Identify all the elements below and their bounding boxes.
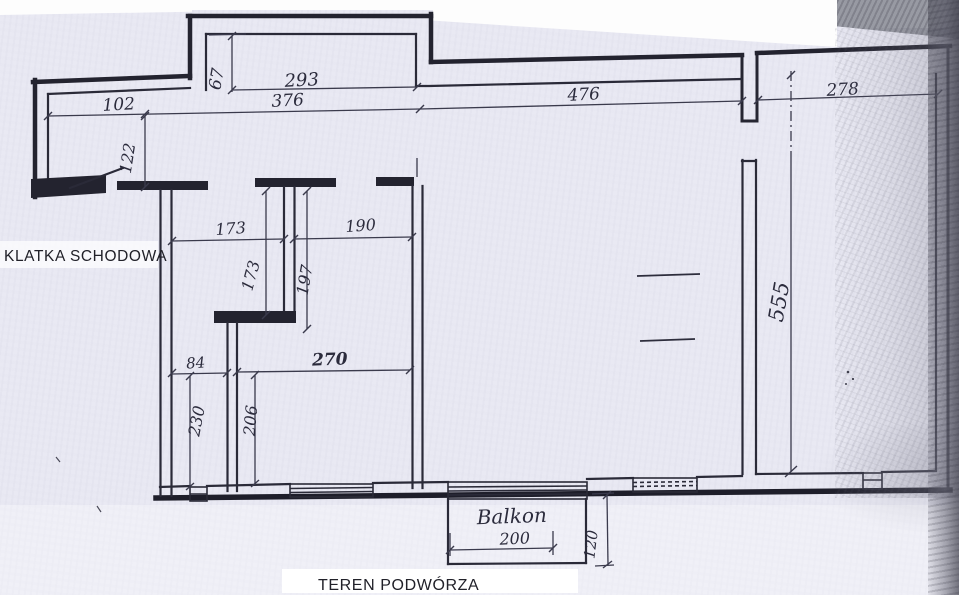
wall-stub-left (117, 181, 208, 190)
dim-label-102: 102 (102, 94, 135, 116)
dim-label-206: 206 (240, 404, 262, 437)
scanned-floor-plan: 67 293 102 376 476 278 122 173 190 173 1… (0, 0, 959, 595)
dimline-293 (232, 87, 417, 90)
bottom-inner-seg6 (756, 473, 863, 474)
wall-stub-mid (255, 178, 336, 187)
dimension-ticks (44, 32, 942, 568)
bottom-inner-seg4 (587, 478, 633, 479)
label-balcony: Balkon (475, 503, 547, 529)
ext-120-b (595, 565, 614, 566)
wall-jog-bar (214, 311, 296, 323)
dim-label-84: 84 (185, 353, 205, 372)
interior-walls (70, 160, 756, 496)
ink-speck (56, 457, 60, 462)
bottom-inner-seg5 (697, 476, 742, 477)
window-right-room (863, 473, 882, 489)
room-labels: KLATKA SCHODOWA TEREN PODWÓRZA Balkon (4, 248, 547, 594)
dim-label-197: 197 (293, 263, 317, 297)
dim-label-278: 278 (825, 79, 860, 101)
wall-top-pier (742, 54, 757, 121)
dim-label-67: 67 (205, 67, 228, 92)
dim-label-230: 230 (184, 404, 209, 439)
bottom-inner-seg1 (160, 486, 190, 487)
dimline-84 (172, 373, 227, 374)
room-mark-1 (637, 274, 700, 276)
dim-label-122: 122 (116, 142, 140, 175)
dimline-190 (294, 237, 412, 239)
dim-label-270: 270 (311, 349, 348, 370)
bottom-inner-seg7 (882, 471, 936, 472)
ink-speck (97, 506, 101, 512)
dimline-120 (607, 495, 608, 565)
wall-top-right-outer (757, 46, 950, 53)
outer-walls (31, 14, 950, 498)
dimline-173h (172, 239, 284, 241)
bottom-inner-wall (160, 471, 936, 487)
dim-label-200: 200 (498, 528, 530, 549)
bottom-inner-seg3 (373, 482, 448, 483)
dim-label-120: 120 (580, 529, 601, 560)
dim-label-173h: 173 (215, 218, 247, 239)
dim-label-190: 190 (345, 215, 377, 236)
wall-top-mid-outer (431, 55, 742, 62)
room-mark-2 (640, 339, 695, 341)
ink-speck (845, 383, 847, 385)
dim-label-376: 376 (271, 90, 305, 112)
dim-label-476: 476 (566, 84, 601, 106)
floorplan-drawing: 67 293 102 376 476 278 122 173 190 173 1… (0, 0, 959, 595)
dim-label-555: 555 (764, 280, 795, 324)
dimline-270 (237, 370, 410, 372)
ink-speck (852, 378, 854, 380)
wall-top-left-outer (33, 76, 190, 82)
wall-stub-c (376, 177, 414, 186)
dim-label-173v: 173 (238, 258, 264, 292)
dim-label-293: 293 (283, 69, 319, 92)
bottom-inner-seg2 (207, 484, 290, 486)
ink-speck (847, 371, 850, 374)
label-staircase: KLATKA SCHODOWA (4, 248, 167, 265)
wall-top-left-inner (48, 88, 190, 94)
label-courtyard: TEREN PODWÓRZA (318, 575, 479, 594)
